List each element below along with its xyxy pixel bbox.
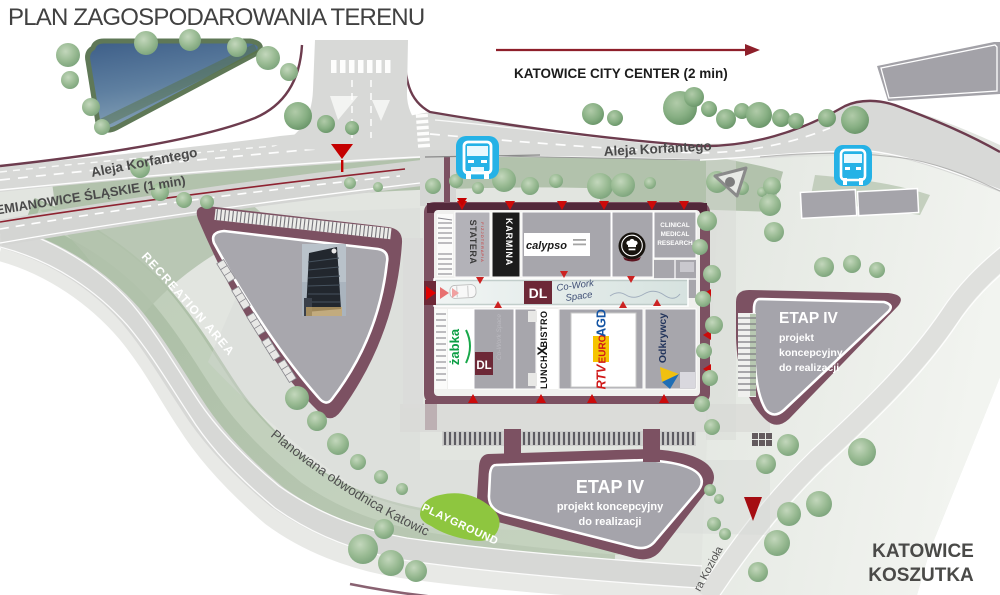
- svg-text:żabka: żabka: [447, 328, 462, 365]
- svg-text:RTV: RTV: [595, 363, 609, 389]
- svg-text:KARMINA: KARMINA: [504, 218, 514, 266]
- svg-text:MEDICAL: MEDICAL: [661, 231, 690, 238]
- svg-text:ETAP IV: ETAP IV: [576, 477, 644, 497]
- svg-text:koncepcyjny: koncepcyjny: [779, 347, 843, 359]
- svg-text:KATOWICE CITY CENTER (2 min): KATOWICE CITY CENTER (2 min): [514, 66, 728, 81]
- svg-text:EURO: EURO: [598, 334, 609, 363]
- svg-text:ETAP IV: ETAP IV: [779, 310, 839, 327]
- svg-text:calypso: calypso: [526, 240, 567, 252]
- svg-text:projekt: projekt: [779, 332, 815, 344]
- svg-text:do realizacji: do realizacji: [779, 362, 839, 374]
- svg-text:KATOWICE: KATOWICE: [872, 541, 974, 562]
- svg-text:Odkrywcy: Odkrywcy: [657, 313, 669, 363]
- svg-text:RESEARCH: RESEARCH: [657, 240, 693, 247]
- svg-text:KOSZUTKA: KOSZUTKA: [868, 565, 974, 586]
- svg-text:BISTRO: BISTRO: [539, 310, 549, 347]
- svg-text:projekt koncepcyjny: projekt koncepcyjny: [557, 501, 664, 513]
- svg-text:X: X: [534, 346, 550, 356]
- svg-text:STATERA: STATERA: [468, 220, 478, 265]
- svg-text:DL: DL: [476, 360, 491, 372]
- svg-text:CLINICAL: CLINICAL: [660, 222, 690, 229]
- svg-text:LUNCH: LUNCH: [539, 355, 549, 389]
- svg-text:do realizacji: do realizacji: [579, 516, 642, 528]
- svg-text:AGD: AGD: [595, 309, 609, 337]
- svg-text:Co-Work Space: Co-Work Space: [496, 314, 503, 360]
- svg-text:F I Z J O T E R A P I A: F I Z J O T E R A P I A: [480, 222, 485, 262]
- svg-text:PLAN ZAGOSPODAROWANIA TERENU: PLAN ZAGOSPODAROWANIA TERENU: [8, 4, 424, 31]
- svg-text:DL: DL: [529, 285, 548, 301]
